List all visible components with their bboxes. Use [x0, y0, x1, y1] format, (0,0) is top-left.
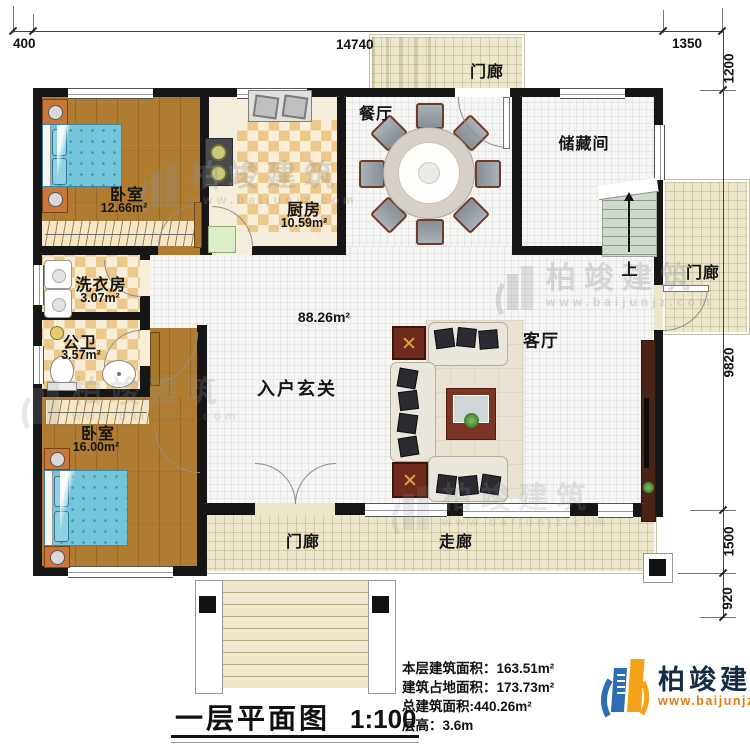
info-value: 173.73m² — [497, 680, 555, 695]
washing-machine — [44, 289, 72, 318]
info-value: 3.6m — [443, 718, 474, 733]
info-label: 总建筑面积: — [402, 699, 474, 714]
wall — [512, 246, 604, 255]
company-logo: 柏竣建筑 www.baijunjz.com — [596, 652, 750, 722]
info-footprint: 建筑占地面积：173.73m² — [402, 678, 554, 697]
washing-machine — [44, 260, 72, 289]
porch-column — [199, 596, 216, 613]
room-label-porch-bottom: 门廊 — [286, 528, 320, 552]
bed-headboard — [43, 125, 51, 186]
door-opening — [455, 88, 510, 97]
company-logo-icon — [598, 654, 652, 720]
sofa-top — [428, 322, 508, 366]
info-floor-area: 本层建筑面积：163.51m² — [402, 659, 554, 678]
bed-blanket — [57, 125, 78, 186]
sofa-cushion — [398, 390, 419, 411]
kitchen-sink-counter — [248, 90, 312, 122]
bed-bedroom2 — [44, 470, 128, 546]
info-label: 层高： — [402, 718, 443, 733]
company-name: 柏竣建筑 — [658, 666, 750, 694]
sofa-cushion — [396, 367, 418, 389]
info-total-area: 总建筑面积:440.26m² — [402, 697, 554, 716]
area-bedroom2: 16.00m² — [73, 440, 120, 454]
sofa-cushion — [458, 475, 479, 496]
wall — [447, 503, 463, 516]
dim-1500: 1500 — [722, 526, 737, 556]
burner-icon — [210, 144, 227, 161]
sofa-cushion — [434, 328, 455, 349]
extension-line — [700, 90, 736, 91]
door-opening — [654, 285, 663, 330]
sofa-cushion — [397, 413, 418, 434]
burner-icon — [210, 165, 227, 182]
drain-icon — [117, 372, 121, 376]
sofa-cushion — [480, 474, 502, 496]
side-table — [392, 326, 426, 360]
hallway-door-leaf — [150, 332, 160, 386]
nightstand — [44, 448, 70, 470]
dining-chair — [416, 219, 444, 245]
sink-icon — [282, 94, 309, 119]
lamp-icon — [50, 452, 65, 467]
room-label-porch-top: 门廊 — [470, 58, 504, 82]
window — [463, 503, 570, 518]
wall — [200, 503, 255, 515]
window — [560, 88, 625, 99]
drawing-title-text: 一层平面图 — [175, 697, 330, 737]
dim-tick — [718, 27, 726, 35]
stairs-arrow-head — [624, 192, 634, 201]
lamp-icon — [50, 550, 65, 565]
extension-line — [678, 573, 736, 574]
bed-headboard — [45, 471, 53, 545]
window — [598, 503, 633, 518]
door-opening — [140, 330, 150, 366]
tv-icon — [644, 398, 649, 468]
porch-top-door-leaf — [503, 97, 510, 149]
room-label-stairs-up: 上 — [621, 256, 638, 280]
company-website: www.baijunjz.com — [658, 694, 750, 708]
kitchen-stove — [205, 138, 233, 186]
window — [654, 125, 665, 180]
bedroom1-door-leaf — [194, 202, 202, 248]
sink-icon — [253, 94, 280, 119]
area-kitchen: 10.59m² — [281, 216, 328, 230]
door-opening — [255, 503, 335, 515]
sofa-left — [390, 362, 436, 462]
dim-1350: 1350 — [672, 36, 702, 51]
wall — [337, 88, 346, 255]
washer-door-icon — [52, 298, 66, 312]
porch-top-stripes — [372, 37, 434, 90]
dim-920: 920 — [720, 587, 735, 610]
plant-icon — [643, 482, 654, 493]
sofa-bottom — [428, 456, 508, 502]
sofa-cushion — [398, 436, 420, 458]
room-label-corridor: 走廊 — [439, 528, 473, 552]
floorplan-canvas: 卧室 12.66m² 厨房 10.59m² 餐厅 储藏间 上 门廊 门廊 洗衣房… — [0, 0, 750, 746]
area-open: 88.26m² — [298, 309, 350, 325]
window — [365, 503, 447, 517]
area-bedroom1: 12.66m² — [101, 201, 148, 215]
dining-chair — [475, 160, 501, 188]
area-bath: 3.57m² — [61, 348, 101, 362]
info-label: 建筑占地面积： — [402, 680, 497, 695]
room-label-foyer: 入户玄关 — [257, 375, 337, 401]
area-laundry: 3.07m² — [80, 291, 120, 305]
info-value: 440.26m² — [474, 699, 532, 714]
lamp-icon — [48, 192, 63, 207]
window — [68, 88, 153, 99]
nightstand — [42, 99, 68, 125]
wall — [570, 503, 598, 516]
nightstand — [42, 185, 68, 213]
info-label: 本层建筑面积： — [402, 661, 497, 676]
info-height: 层高：3.6m — [402, 716, 554, 735]
sofa-cushion — [478, 329, 499, 350]
lamp-icon — [48, 105, 63, 120]
side-table — [392, 462, 428, 498]
room-label-storage: 储藏间 — [558, 130, 609, 154]
info-value: 163.51m² — [497, 661, 555, 676]
dining-table-center — [418, 162, 440, 184]
dim-9820: 9820 — [722, 347, 737, 377]
room-label-porch-right: 门廊 — [686, 259, 720, 283]
dimension-line-top — [12, 31, 722, 32]
dim-14740: 14740 — [336, 37, 374, 52]
title-underline-thin — [171, 742, 419, 743]
window — [33, 346, 44, 384]
bed-bedroom1 — [42, 124, 122, 187]
dining-chair — [359, 160, 385, 188]
drawing-title: 一层平面图 1:100 — [175, 697, 417, 737]
door-opening — [140, 260, 150, 296]
extension-line — [690, 510, 736, 511]
bath-lamp-icon — [50, 326, 64, 340]
sofa-cushion — [456, 327, 477, 348]
porch-bottom-floor — [204, 512, 656, 573]
porch-column — [649, 559, 666, 576]
dim-400: 400 — [13, 36, 36, 51]
washer-door-icon — [52, 269, 66, 283]
plant-icon — [464, 413, 479, 428]
dim-1200: 1200 — [722, 53, 737, 83]
entry-steps — [222, 580, 368, 688]
room-label-living: 客厅 — [523, 327, 559, 352]
wall — [33, 88, 42, 576]
dining-chair — [416, 103, 444, 129]
toilet-tank — [47, 382, 77, 391]
stairs-direction-arrow — [628, 200, 630, 252]
window — [68, 566, 173, 578]
wall — [335, 503, 365, 515]
bed-blanket — [60, 471, 82, 545]
wall — [512, 88, 522, 255]
coffee-table — [446, 388, 496, 440]
porch-column — [372, 596, 389, 613]
window — [33, 265, 44, 305]
room-label-dining: 餐厅 — [359, 100, 393, 124]
title-underline — [171, 735, 419, 738]
porch-right-door-leaf — [663, 285, 709, 292]
nightstand — [44, 546, 70, 568]
sofa-cushion — [436, 474, 457, 495]
extension-line — [700, 617, 736, 618]
building-info: 本层建筑面积：163.51m² 建筑占地面积：173.73m² 总建筑面积:44… — [402, 659, 554, 735]
